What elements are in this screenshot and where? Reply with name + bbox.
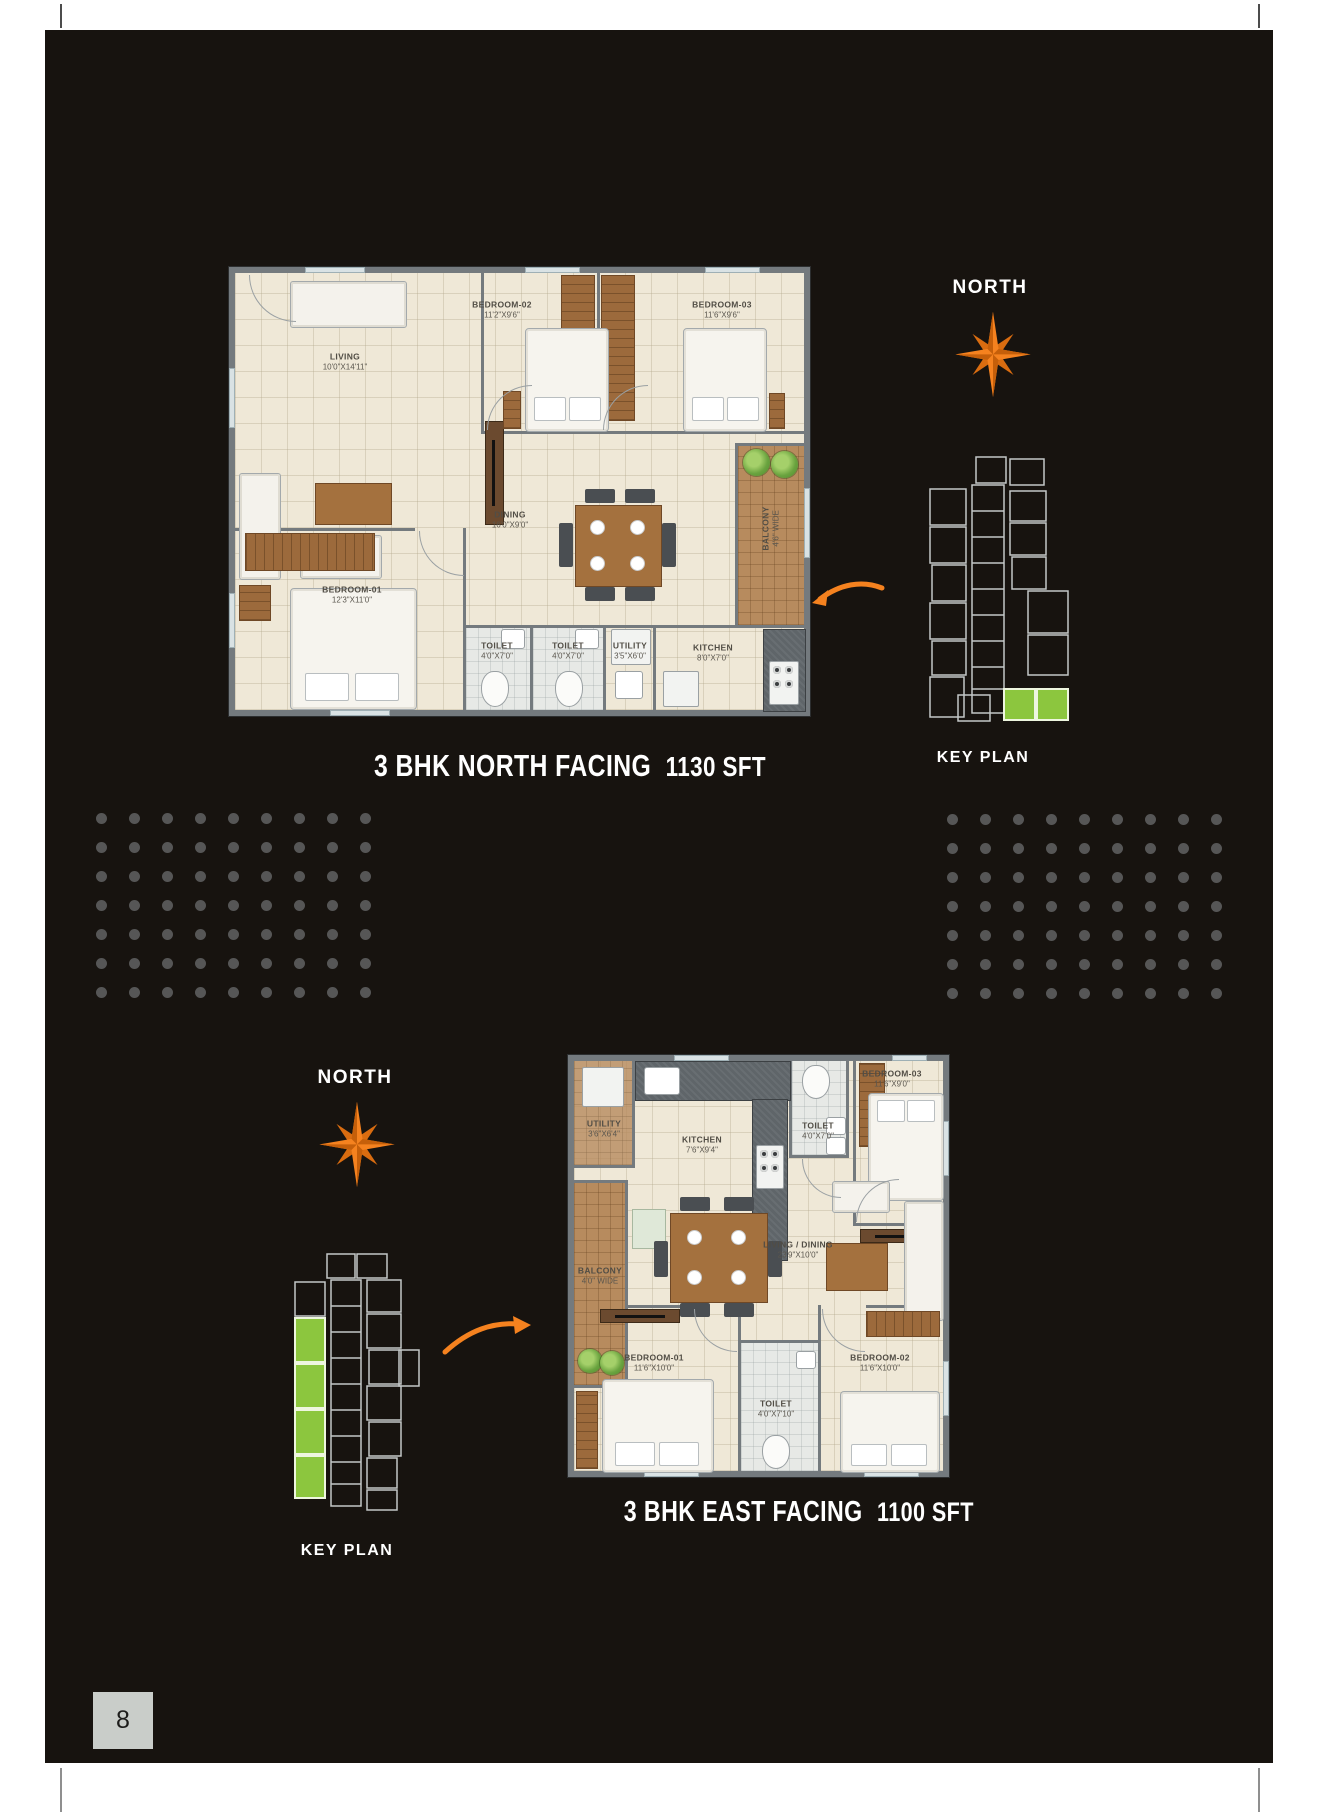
dot: [360, 987, 371, 998]
crop-mark: [1258, 4, 1260, 28]
dot-grid: [96, 813, 371, 998]
plate: [590, 556, 605, 571]
dot: [96, 842, 107, 853]
dot: [1211, 959, 1222, 970]
chair: [680, 1197, 710, 1211]
brochure-page: { "page": { "number": "8" }, "colors": {…: [0, 0, 1322, 1815]
dot: [261, 813, 272, 824]
window: [229, 593, 235, 648]
burner: [771, 1150, 779, 1158]
room-label-bedroom3: BEDROOM-03 11'6"X9'6": [692, 300, 752, 321]
dot: [1178, 843, 1189, 854]
dot: [360, 842, 371, 853]
dot: [1079, 959, 1090, 970]
wall: [603, 625, 606, 710]
plan-caption-east: 3 BHK EAST FACING1100 SFT: [580, 1496, 940, 1529]
room-label-toilet-bottom: TOILET 4'0"X7'10": [758, 1399, 794, 1420]
plate: [731, 1270, 746, 1285]
dot: [1079, 872, 1090, 883]
fridge: [663, 671, 699, 707]
dot: [1178, 988, 1189, 999]
dot: [195, 842, 206, 853]
room-label-toilet1: TOILET 4'0"X7'0": [481, 641, 513, 662]
dot: [1112, 872, 1123, 883]
wall: [789, 1155, 849, 1158]
pillow: [355, 673, 399, 701]
dot: [1013, 872, 1024, 883]
room-label-bedroom2: BEDROOM-02 11'2"X9'6": [472, 300, 532, 321]
dot: [980, 814, 991, 825]
wall: [818, 1305, 821, 1471]
window: [705, 267, 760, 273]
pillow: [659, 1442, 699, 1466]
room-label-balcony: BALCONY 4'6" WIDE: [760, 506, 781, 555]
dot: [1046, 843, 1057, 854]
plate: [687, 1270, 702, 1285]
dot: [1211, 872, 1222, 883]
wardrobe: [245, 533, 375, 571]
dot: [1079, 843, 1090, 854]
dot: [360, 871, 371, 882]
dot: [228, 929, 239, 940]
sink: [644, 1067, 680, 1095]
dot: [195, 987, 206, 998]
stove: [756, 1145, 784, 1189]
dot: [1145, 843, 1156, 854]
chair: [625, 489, 655, 503]
dot: [228, 842, 239, 853]
dot: [327, 871, 338, 882]
dot: [1046, 872, 1057, 883]
dot: [261, 871, 272, 882]
nightstand: [769, 393, 785, 429]
dot: [162, 842, 173, 853]
pillow: [615, 1442, 655, 1466]
burner: [773, 680, 781, 688]
room-label-kitchen: KITCHEN 7'6"X9'4": [682, 1135, 722, 1156]
dot: [1112, 901, 1123, 912]
bed: [840, 1391, 940, 1473]
dot: [261, 958, 272, 969]
dot: [129, 929, 140, 940]
pillow: [891, 1444, 927, 1466]
dot: [980, 901, 991, 912]
sofa: [904, 1201, 944, 1321]
floor-plan-east-facing: UTILITY 3'6"X6'4" KITCHEN 7'6"X9'4" TOIL…: [568, 1055, 949, 1477]
dot: [947, 872, 958, 883]
dot: [162, 958, 173, 969]
dot: [1013, 959, 1024, 970]
tv-screen: [492, 440, 495, 506]
room-label-balcony: BALCONY 4'0" WIDE: [578, 1266, 622, 1287]
plate: [630, 556, 645, 571]
dot: [1211, 814, 1222, 825]
window: [943, 1361, 949, 1416]
dot-grid: [947, 814, 1222, 999]
dot: [294, 958, 305, 969]
pillow: [877, 1100, 905, 1122]
door-arc: [802, 1159, 841, 1198]
keyplan-label: KEY PLAN: [267, 1542, 427, 1560]
wardrobe: [866, 1311, 940, 1337]
plate: [731, 1230, 746, 1245]
dot: [947, 959, 958, 970]
door-arc: [419, 531, 464, 576]
dot: [294, 871, 305, 882]
dot: [1013, 843, 1024, 854]
toilet-fixture: [555, 671, 583, 707]
dot: [327, 900, 338, 911]
dot: [261, 842, 272, 853]
plant-icon: [743, 449, 770, 476]
crop-mark: [1258, 1768, 1260, 1812]
dot: [980, 843, 991, 854]
dot: [195, 900, 206, 911]
dining-table: [670, 1213, 768, 1303]
dot: [1046, 930, 1057, 941]
dot: [1145, 988, 1156, 999]
dot: [228, 987, 239, 998]
dot: [1079, 814, 1090, 825]
pillow: [692, 397, 724, 421]
dot: [1178, 814, 1189, 825]
tv-unit: [600, 1309, 680, 1323]
dot: [1112, 843, 1123, 854]
dot: [96, 871, 107, 882]
dot: [980, 930, 991, 941]
plate: [687, 1230, 702, 1245]
sink: [796, 1351, 816, 1369]
bed: [525, 328, 609, 432]
dot: [228, 871, 239, 882]
dot: [1211, 930, 1222, 941]
coffee-table: [826, 1243, 888, 1291]
dot: [980, 872, 991, 883]
dot: [327, 842, 338, 853]
dot: [1079, 930, 1090, 941]
dot: [96, 987, 107, 998]
dot: [1211, 843, 1222, 854]
dot: [162, 900, 173, 911]
key-plan-north: [928, 457, 1070, 722]
dot: [360, 958, 371, 969]
burner: [771, 1164, 779, 1172]
dot: [1112, 814, 1123, 825]
dot: [1112, 959, 1123, 970]
window: [330, 710, 390, 716]
room-label-bedroom1: BEDROOM-01 11'6"X10'0": [624, 1353, 684, 1374]
coffee-table: [315, 483, 392, 525]
caption-title: 3 BHK NORTH FACING: [374, 748, 651, 783]
dot: [360, 813, 371, 824]
dot: [195, 871, 206, 882]
dot: [980, 959, 991, 970]
dot: [129, 813, 140, 824]
chair: [559, 523, 573, 567]
dot: [327, 958, 338, 969]
dot: [360, 900, 371, 911]
dot: [294, 842, 305, 853]
plan-caption-north: 3 BHK NORTH FACING1130 SFT: [325, 748, 745, 784]
wardrobe: [576, 1391, 598, 1469]
plant-icon: [600, 1351, 624, 1375]
key-plan-east: [293, 1254, 421, 1512]
pillow: [569, 397, 601, 421]
dot: [947, 930, 958, 941]
dot: [129, 842, 140, 853]
door-arc: [694, 1309, 737, 1352]
arrow-icon: [441, 1308, 533, 1356]
dot: [294, 987, 305, 998]
chair: [724, 1197, 754, 1211]
window: [305, 267, 365, 273]
pillow: [851, 1444, 887, 1466]
window: [892, 1055, 927, 1061]
door-arc: [487, 385, 532, 430]
dot: [947, 814, 958, 825]
dot: [947, 843, 958, 854]
pillow: [727, 397, 759, 421]
north-label: NORTH: [915, 277, 1065, 299]
tv-screen: [615, 1315, 665, 1318]
dot: [360, 929, 371, 940]
dot: [947, 988, 958, 999]
wall: [653, 625, 656, 710]
dot: [228, 900, 239, 911]
dot: [1079, 988, 1090, 999]
dot: [162, 987, 173, 998]
room-label-living-dining: LIVING / DINING 23'9"X10'0": [763, 1240, 833, 1261]
burner: [773, 666, 781, 674]
dot: [1178, 959, 1189, 970]
dot: [1046, 959, 1057, 970]
plate: [590, 520, 605, 535]
dot: [228, 813, 239, 824]
stove: [769, 661, 799, 705]
bed: [290, 588, 417, 710]
room-label-bedroom3: BEDROOM-03 11'6"X9'0": [862, 1069, 922, 1090]
dot: [162, 813, 173, 824]
chair: [625, 587, 655, 601]
dot: [1013, 988, 1024, 999]
caption-area: 1100 SFT: [877, 1497, 974, 1527]
dot: [96, 958, 107, 969]
burner: [760, 1164, 768, 1172]
dot: [980, 988, 991, 999]
wall: [846, 1061, 849, 1157]
bed: [602, 1379, 714, 1473]
dot: [1112, 930, 1123, 941]
wall: [574, 1165, 635, 1168]
dot: [228, 958, 239, 969]
dot: [294, 813, 305, 824]
dot: [1211, 901, 1222, 912]
dot: [327, 813, 338, 824]
burner: [785, 666, 793, 674]
room-label-kitchen: KITCHEN 8'0"X7'0": [693, 643, 733, 664]
caption-area: 1130 SFT: [666, 751, 766, 782]
dot: [294, 929, 305, 940]
dot: [1178, 872, 1189, 883]
dot: [1112, 988, 1123, 999]
room-label-toilet-top: TOILET 4'0"X7'0": [802, 1121, 834, 1142]
toilet-fixture: [802, 1065, 830, 1099]
window: [229, 368, 235, 428]
dot: [261, 900, 272, 911]
room-label-bedroom1: BEDROOM-01 12'3"X11'0": [322, 585, 382, 606]
dot: [947, 901, 958, 912]
dot: [327, 987, 338, 998]
dot: [129, 987, 140, 998]
north-label: NORTH: [280, 1067, 430, 1089]
window: [804, 488, 810, 558]
dot: [1046, 988, 1057, 999]
dot: [195, 929, 206, 940]
plant-icon: [578, 1349, 602, 1373]
dot: [327, 929, 338, 940]
dot: [1013, 930, 1024, 941]
room-label-utility: UTILITY 3'5"X6'0": [613, 641, 647, 662]
compass-icon: [312, 1100, 402, 1194]
crop-mark: [60, 4, 62, 28]
dot: [96, 900, 107, 911]
dot: [1013, 901, 1024, 912]
dot: [1145, 930, 1156, 941]
dot: [96, 813, 107, 824]
plate: [630, 520, 645, 535]
room-label-dining: DINING 16'0"X9'0": [492, 510, 528, 531]
pillow: [305, 673, 349, 701]
dot: [1145, 814, 1156, 825]
dot: [195, 813, 206, 824]
dot: [294, 900, 305, 911]
dot: [96, 929, 107, 940]
toilet-fixture: [481, 671, 509, 707]
dot: [1145, 872, 1156, 883]
chair: [654, 1241, 668, 1277]
sofa: [290, 281, 407, 328]
room-label-living: LIVING 10'0"X14'11": [323, 352, 368, 373]
plant-icon: [771, 451, 798, 478]
dot: [1145, 959, 1156, 970]
dot: [1079, 901, 1090, 912]
chair: [585, 587, 615, 601]
pillow: [534, 397, 566, 421]
room-label-bedroom2: BEDROOM-02 11'6"X10'0": [850, 1353, 910, 1374]
burner: [785, 680, 793, 688]
side-table: [239, 585, 271, 621]
dot: [1178, 930, 1189, 941]
chair: [585, 489, 615, 503]
wall: [481, 273, 484, 433]
bed: [683, 328, 767, 432]
dining-table: [575, 505, 662, 587]
dot: [1013, 814, 1024, 825]
dot: [1211, 988, 1222, 999]
dot: [261, 987, 272, 998]
chair: [662, 523, 676, 567]
burner: [760, 1150, 768, 1158]
dot: [162, 929, 173, 940]
caption-title: 3 BHK EAST FACING: [624, 1496, 863, 1528]
dot: [129, 958, 140, 969]
washing-machine: [582, 1067, 624, 1107]
room-label-toilet2: TOILET 4'0"X7'0": [552, 641, 584, 662]
utility-sink: [615, 671, 643, 699]
door-arc: [822, 1309, 865, 1352]
toilet-fixture: [762, 1435, 790, 1469]
dot: [1145, 901, 1156, 912]
keyplan-label: KEY PLAN: [903, 749, 1063, 767]
page-number: 8: [93, 1692, 153, 1749]
room-label-utility: UTILITY 3'6"X6'4": [587, 1119, 621, 1140]
arrow-icon: [810, 582, 886, 616]
dot: [129, 900, 140, 911]
page-background: LIVING 10'0"X14'11" BEDROOM-02 11'2"X9'6…: [45, 30, 1273, 1763]
dot: [261, 929, 272, 940]
dot: [1046, 814, 1057, 825]
pillow: [907, 1100, 935, 1122]
dot: [1178, 901, 1189, 912]
window: [525, 267, 580, 273]
dot: [129, 871, 140, 882]
dot: [1046, 901, 1057, 912]
dot: [195, 958, 206, 969]
door-arc: [249, 275, 296, 322]
dot: [162, 871, 173, 882]
floor-plan-north-facing: LIVING 10'0"X14'11" BEDROOM-02 11'2"X9'6…: [229, 267, 810, 716]
compass-icon: [948, 310, 1038, 404]
crop-mark: [60, 1768, 62, 1812]
